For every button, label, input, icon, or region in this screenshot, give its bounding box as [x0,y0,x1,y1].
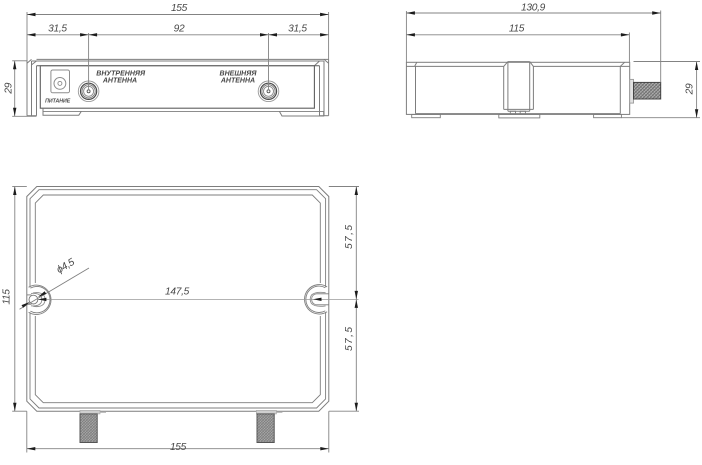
svg-text:ПИТАНИЕ: ПИТАНИЕ [45,99,71,105]
svg-text:31,5: 31,5 [48,23,67,34]
svg-text:ВНЕШНЯЯ: ВНЕШНЯЯ [220,71,258,78]
svg-text:57,5: 57,5 [344,326,355,351]
svg-text:115: 115 [509,23,525,34]
svg-text:130,9: 130,9 [521,3,546,14]
svg-text:155: 155 [171,3,188,14]
svg-text:31,5: 31,5 [288,23,307,34]
svg-text:АНТЕННА: АНТЕННА [220,78,255,85]
svg-text:АНТЕННА: АНТЕННА [102,78,137,85]
svg-text:147,5: 147,5 [165,287,190,298]
svg-text:29: 29 [685,83,696,95]
svg-text:ВНУТРЕННЯЯ: ВНУТРЕННЯЯ [96,71,146,78]
svg-text:115: 115 [1,289,12,305]
svg-text:29: 29 [3,82,14,94]
svg-text:57,5: 57,5 [344,224,355,249]
svg-text:92: 92 [174,23,185,34]
svg-text:155: 155 [170,442,187,453]
